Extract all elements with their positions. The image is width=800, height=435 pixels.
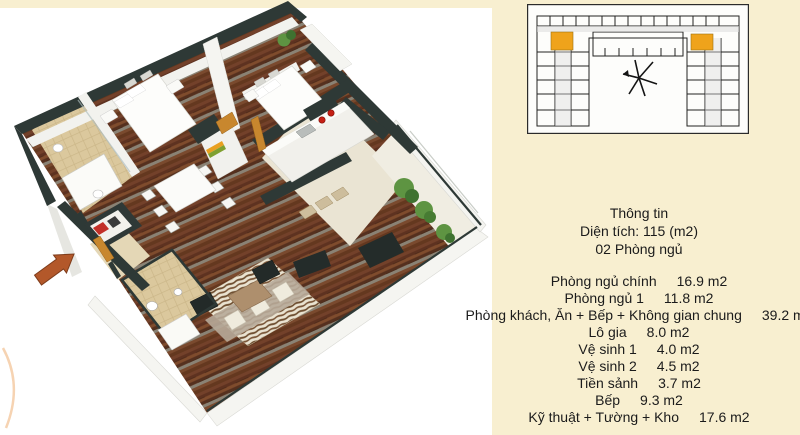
room-area-list: Phòng ngủ chính16.9 m2 Phòng ngủ 111.8 m… — [458, 273, 800, 426]
sink — [53, 144, 63, 152]
room-value: 4.5 m2 — [657, 358, 700, 375]
room-label: Bếp — [595, 392, 620, 409]
room-row: Vệ sinh 14.0 m2 — [458, 341, 800, 358]
room-label: Phòng khách, Ăn + Bếp + Không gian chung — [466, 307, 742, 324]
decorative-arc — [3, 348, 14, 428]
cooktop-burner — [328, 110, 334, 116]
room-label: Vệ sinh 1 — [578, 341, 636, 358]
info-area-line: Diện tích: 115 (m2) — [458, 222, 800, 240]
room-row: Lô gia8.0 m2 — [458, 324, 800, 341]
building-key-plan — [527, 4, 749, 134]
apartment-3d-floor-plan — [0, 0, 500, 435]
room-row: Bếp9.3 m2 — [458, 392, 800, 409]
room-row: Phòng ngủ chính16.9 m2 — [458, 273, 800, 290]
info-panel: Thông tin Diện tích: 115 (m2) 02 Phòng n… — [458, 204, 800, 426]
room-label: Lô gia — [589, 324, 627, 341]
info-title: Thông tin — [458, 204, 800, 222]
room-value: 3.7 m2 — [658, 375, 701, 392]
room-label: Kỹ thuật + Tường + Kho — [528, 409, 679, 426]
room-label: Tiền sảnh — [577, 375, 638, 392]
room-value: 8.0 m2 — [647, 324, 690, 341]
room-label: Phòng ngủ 1 — [565, 290, 644, 307]
room-row: Phòng ngủ 111.8 m2 — [458, 290, 800, 307]
toilet — [93, 190, 103, 198]
page: Thông tin Diện tích: 115 (m2) 02 Phòng n… — [0, 0, 800, 435]
info-bedrooms-line: 02 Phòng ngủ — [458, 240, 800, 258]
room-row: Phòng khách, Ăn + Bếp + Không gian chung… — [458, 307, 800, 324]
room-row: Vệ sinh 24.5 m2 — [458, 358, 800, 375]
room-row: Kỹ thuật + Tường + Kho17.6 m2 — [458, 409, 800, 426]
room-value: 16.9 m2 — [677, 273, 728, 290]
room-value: 11.8 m2 — [664, 290, 714, 307]
room-label: Phòng ngủ chính — [551, 273, 657, 290]
room-value: 4.0 m2 — [657, 341, 700, 358]
room-label: Vệ sinh 2 — [578, 358, 636, 375]
room-value: 17.6 m2 — [699, 409, 750, 426]
room-row: Tiền sảnh3.7 m2 — [458, 375, 800, 392]
apartment-floor — [21, 8, 476, 413]
room-value: 9.3 m2 — [640, 392, 683, 409]
highlighted-unit-left — [551, 32, 573, 50]
room-value: 39.2 m2 — [762, 307, 800, 324]
entrance-arrow-icon — [35, 254, 75, 285]
toilet — [147, 302, 158, 311]
highlighted-unit-right — [691, 34, 713, 50]
cooktop-burner — [319, 117, 325, 123]
sink — [174, 289, 182, 296]
